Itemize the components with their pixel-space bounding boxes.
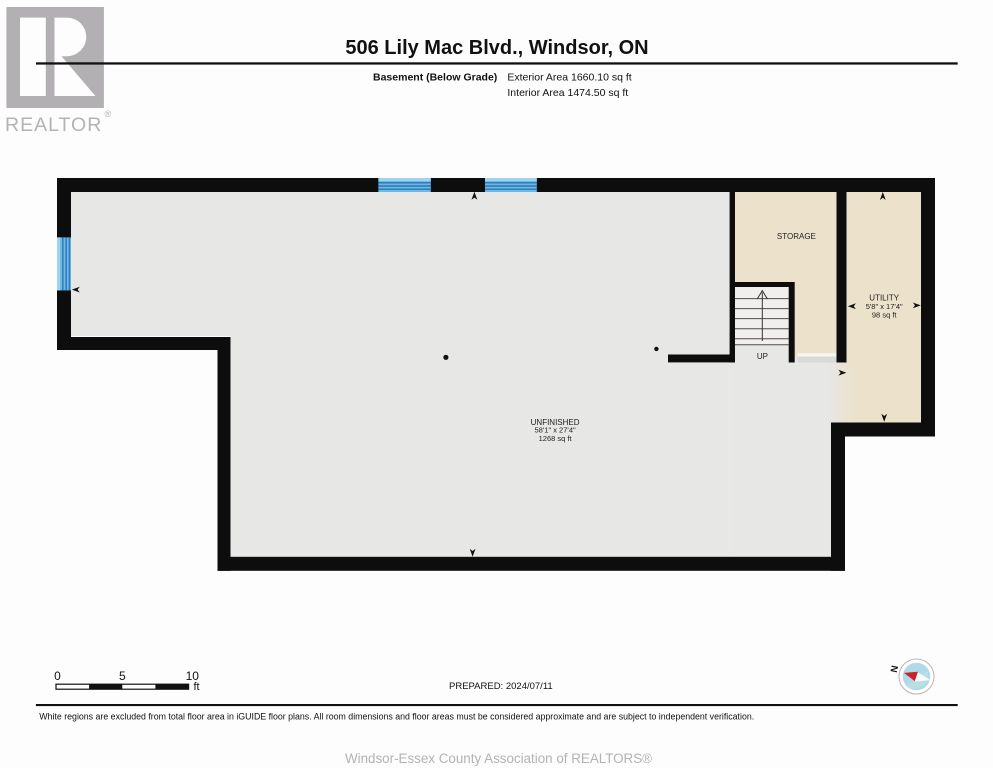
svg-text:Basement (Below Grade): Basement (Below Grade) [373, 72, 497, 84]
svg-text:®: ® [105, 109, 112, 119]
svg-text:5: 5 [119, 669, 126, 683]
svg-text:0: 0 [54, 669, 61, 683]
svg-text:REALTOR: REALTOR [5, 114, 102, 136]
svg-text:Exterior Area 1660.10 sq ft: Exterior Area 1660.10 sq ft [507, 72, 631, 84]
svg-text:White regions are excluded fro: White regions are excluded from total fl… [39, 712, 754, 722]
svg-text:STORAGE: STORAGE [777, 232, 816, 241]
svg-text:PREPARED: 2024/07/11: PREPARED: 2024/07/11 [449, 681, 553, 692]
svg-text:506 Lily Mac Blvd., Windsor, O: 506 Lily Mac Blvd., Windsor, ON [345, 37, 648, 59]
svg-text:N: N [889, 664, 901, 673]
svg-text:Interior Area 1474.50 sq ft: Interior Area 1474.50 sq ft [507, 87, 628, 99]
svg-text:ft: ft [194, 681, 200, 693]
svg-text:98 sq ft: 98 sq ft [872, 310, 898, 319]
svg-text:Windsor-Essex County Associati: Windsor-Essex County Association of REAL… [345, 751, 652, 766]
svg-text:1268 sq ft: 1268 sq ft [539, 434, 573, 443]
svg-text:UP: UP [757, 352, 768, 361]
